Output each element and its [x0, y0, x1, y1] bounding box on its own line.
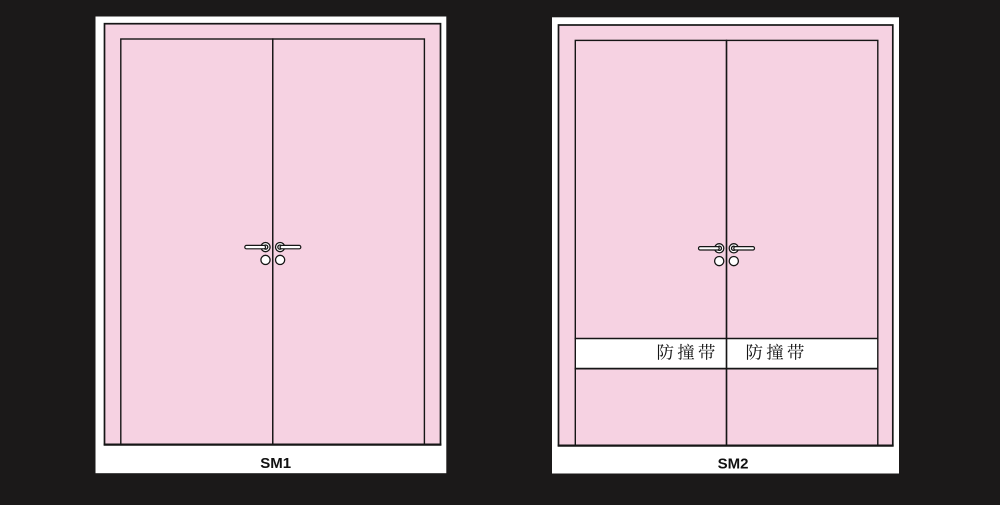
- svg-text:SM1: SM1: [260, 455, 291, 472]
- svg-text:SM2: SM2: [718, 456, 749, 473]
